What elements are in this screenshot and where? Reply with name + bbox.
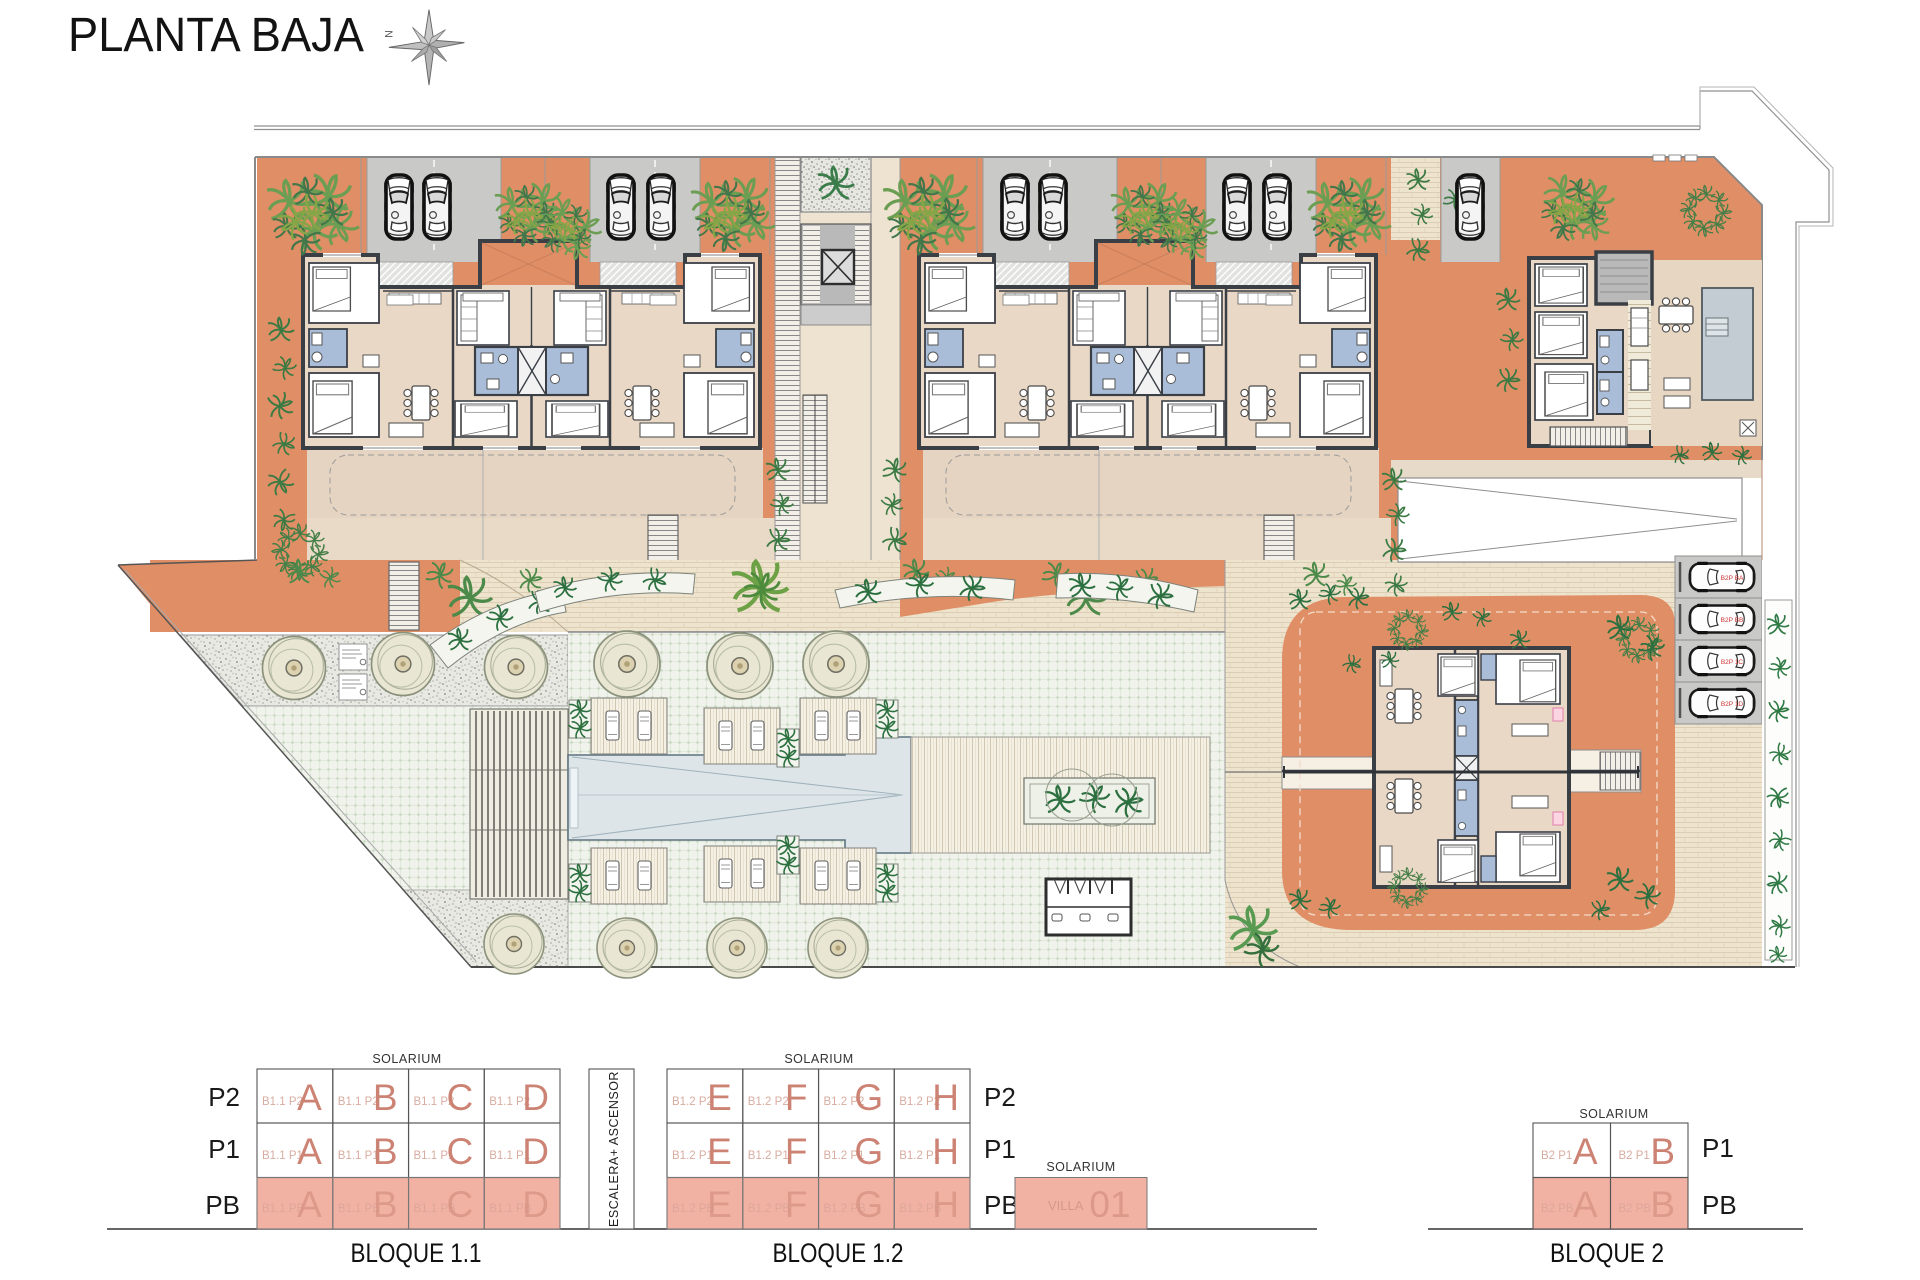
svg-text:C: C <box>446 1184 473 1225</box>
svg-text:B2 P1: B2 P1 <box>1619 1150 1650 1162</box>
svg-text:SOLARIUM: SOLARIUM <box>372 1052 441 1066</box>
svg-text:B: B <box>373 1077 398 1118</box>
svg-text:BLOQUE 1.1: BLOQUE 1.1 <box>351 1238 482 1268</box>
svg-text:SOLARIUM: SOLARIUM <box>784 1052 853 1066</box>
svg-text:BLOQUE 1.2: BLOQUE 1.2 <box>773 1238 904 1268</box>
svg-text:D: D <box>522 1184 549 1225</box>
svg-text:B2P 1C: B2P 1C <box>1721 659 1744 666</box>
svg-text:B1.2 P1: B1.2 P1 <box>748 1150 789 1162</box>
svg-text:F: F <box>785 1077 808 1118</box>
svg-text:P1: P1 <box>208 1134 240 1164</box>
svg-text:B2 PB: B2 PB <box>1541 1203 1574 1215</box>
svg-text:01: 01 <box>1089 1184 1130 1225</box>
svg-text:P1: P1 <box>984 1134 1016 1164</box>
svg-text:A: A <box>297 1131 322 1172</box>
svg-text:P1: P1 <box>1702 1133 1734 1163</box>
svg-text:B2P BB: B2P BB <box>1721 617 1744 624</box>
svg-text:PLANTA BAJA: PLANTA BAJA <box>68 9 364 62</box>
svg-text:B: B <box>373 1184 398 1225</box>
svg-text:PB: PB <box>1702 1190 1737 1220</box>
svg-text:N: N <box>383 30 395 38</box>
svg-text:SOLARIUM: SOLARIUM <box>1046 1160 1115 1174</box>
svg-text:A: A <box>297 1077 322 1118</box>
svg-text:B2 PB: B2 PB <box>1619 1203 1652 1215</box>
svg-text:ESCALERA+ ASCENSOR: ESCALERA+ ASCENSOR <box>607 1071 621 1227</box>
svg-text:A: A <box>1573 1131 1598 1172</box>
svg-text:P2: P2 <box>208 1082 240 1112</box>
svg-text:H: H <box>932 1131 959 1172</box>
svg-text:D: D <box>522 1131 549 1172</box>
svg-text:C: C <box>446 1131 473 1172</box>
svg-text:G: G <box>854 1077 883 1118</box>
svg-text:B1.2 P2: B1.2 P2 <box>748 1096 789 1108</box>
svg-text:B: B <box>1650 1131 1675 1172</box>
svg-text:G: G <box>854 1184 883 1225</box>
svg-text:B2P BA: B2P BA <box>1721 575 1744 582</box>
svg-text:BLOQUE 2: BLOQUE 2 <box>1550 1238 1664 1268</box>
svg-text:PB: PB <box>205 1190 240 1220</box>
svg-text:G: G <box>854 1131 883 1172</box>
svg-text:B: B <box>1650 1184 1675 1225</box>
svg-text:A: A <box>1573 1184 1598 1225</box>
svg-text:B2P 1D: B2P 1D <box>1721 701 1744 708</box>
svg-text:F: F <box>785 1184 808 1225</box>
svg-text:E: E <box>707 1131 732 1172</box>
svg-text:PB: PB <box>984 1190 1019 1220</box>
svg-text:P2: P2 <box>984 1082 1016 1112</box>
svg-text:VILLA: VILLA <box>1048 1198 1084 1213</box>
svg-text:B2 P1: B2 P1 <box>1541 1150 1572 1162</box>
svg-text:F: F <box>785 1131 808 1172</box>
svg-text:D: D <box>522 1077 549 1118</box>
svg-text:SOLARIUM: SOLARIUM <box>1579 1107 1648 1121</box>
svg-text:C: C <box>446 1077 473 1118</box>
svg-text:H: H <box>932 1077 959 1118</box>
svg-text:H: H <box>932 1184 959 1225</box>
svg-text:E: E <box>707 1077 732 1118</box>
svg-text:E: E <box>707 1184 732 1225</box>
svg-text:A: A <box>297 1184 322 1225</box>
svg-text:B: B <box>373 1131 398 1172</box>
